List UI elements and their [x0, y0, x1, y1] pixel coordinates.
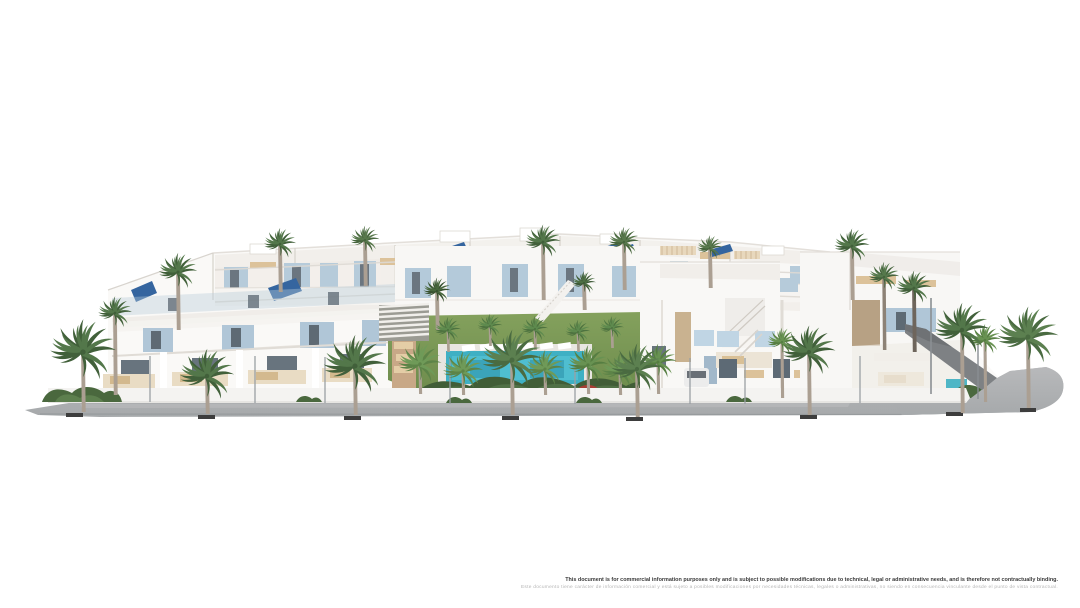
svg-text:This document is for commercia: This document is for commercial informat…	[565, 577, 1058, 583]
svg-text:Este documento tiene carácter: Este documento tiene carácter de informa…	[521, 584, 1058, 590]
